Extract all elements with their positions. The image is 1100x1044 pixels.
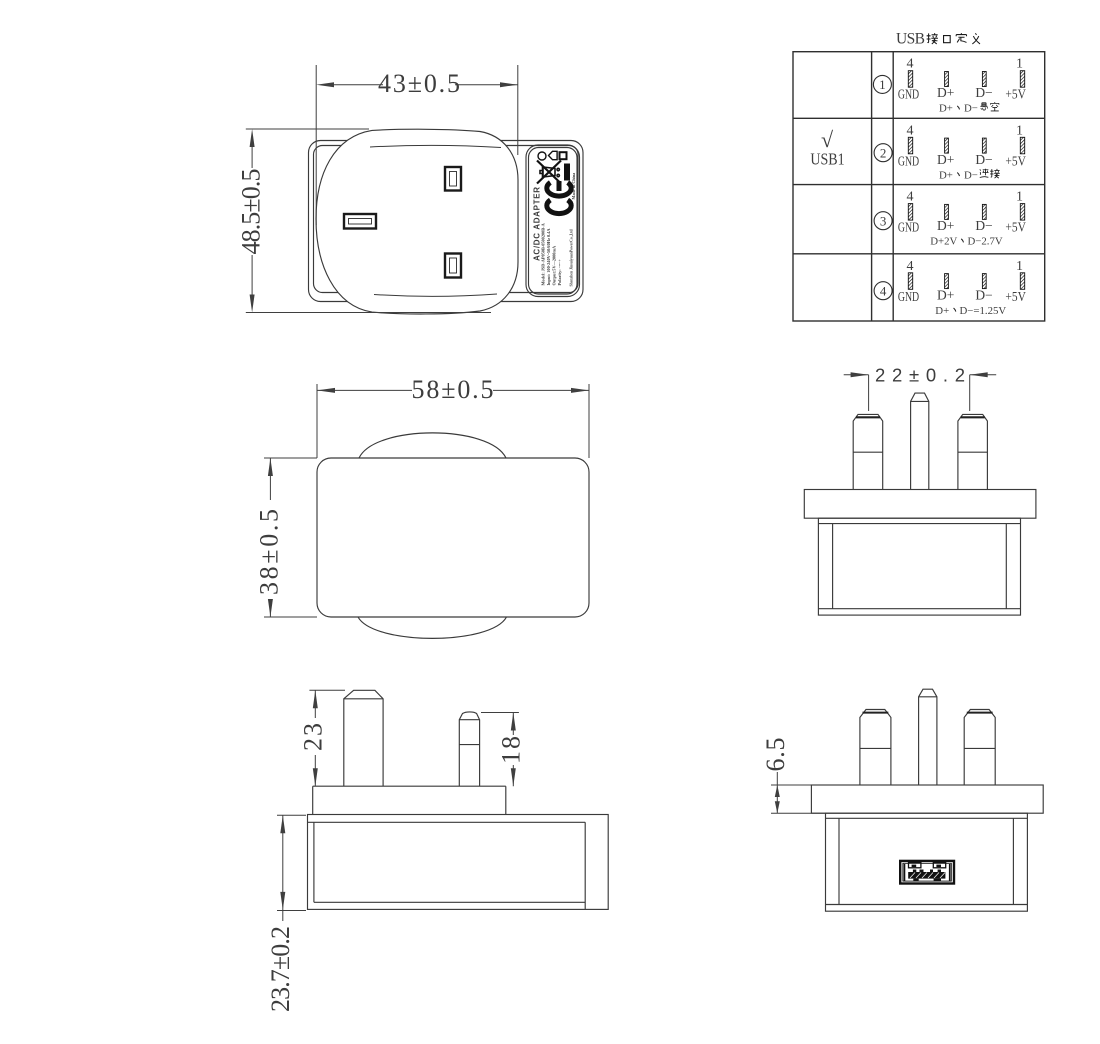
svg-text:Model: JSD-AP050B-0500200B-A: Model: JSD-AP050B-0500200B-A — [540, 222, 545, 285]
svg-text:3: 3 — [880, 213, 887, 228]
svg-text:38±0.5: 38±0.5 — [255, 509, 284, 595]
svg-text:Polarity: −•−+: Polarity: −•−+ — [557, 259, 562, 286]
svg-text:1: 1 — [879, 77, 886, 92]
svg-text:D+: D+ — [935, 305, 949, 317]
svg-text:Shenzhen JinsuiyuanPowerCo.,Lt: Shenzhen JinsuiyuanPowerCo.,Ltd — [570, 229, 574, 287]
svg-text:USB1: USB1 — [810, 150, 844, 168]
svg-text:√: √ — [821, 127, 834, 152]
svg-text:2: 2 — [880, 145, 887, 160]
svg-text:D−2.7V: D−2.7V — [968, 236, 1003, 248]
svg-text:D+2V: D+2V — [930, 236, 957, 248]
svg-text:58±0.5: 58±0.5 — [412, 375, 494, 404]
svg-text:6.5: 6.5 — [761, 738, 790, 772]
svg-text:23.7±0.2: 23.7±0.2 — [266, 926, 295, 1012]
svg-text:D−: D− — [964, 103, 978, 115]
svg-text:Output:5V—2000mA: Output:5V—2000mA — [551, 245, 556, 286]
svg-text:43±0.5: 43±0.5 — [378, 69, 460, 98]
svg-text:D+: D+ — [939, 169, 953, 181]
svg-text:Input: 100-240V~50/60Hz 0.4A: Input: 100-240V~50/60Hz 0.4A — [546, 228, 551, 286]
svg-text:USB: USB — [896, 31, 925, 48]
svg-text:D+: D+ — [939, 103, 953, 115]
svg-text:D−: D− — [964, 169, 978, 181]
svg-text:D−=1.25V: D−=1.25V — [960, 305, 1007, 317]
svg-text:48.5±0.5: 48.5±0.5 — [237, 169, 266, 255]
svg-text:4: 4 — [880, 283, 887, 298]
